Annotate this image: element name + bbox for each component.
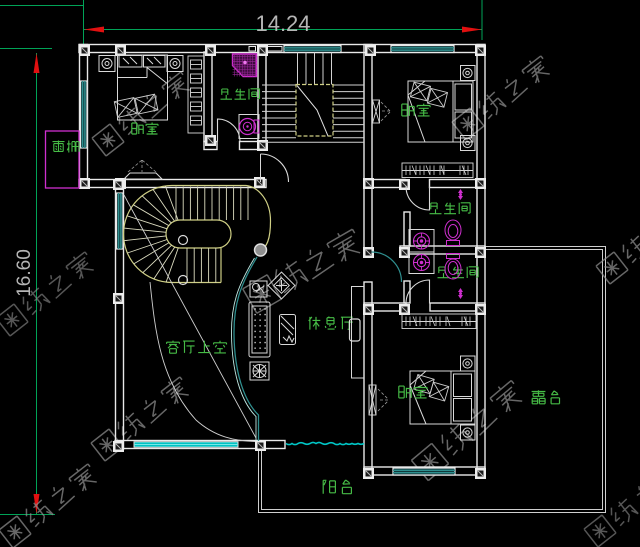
svg-text:16.60: 16.60 — [14, 249, 35, 297]
svg-text:14.24: 14.24 — [255, 11, 310, 36]
